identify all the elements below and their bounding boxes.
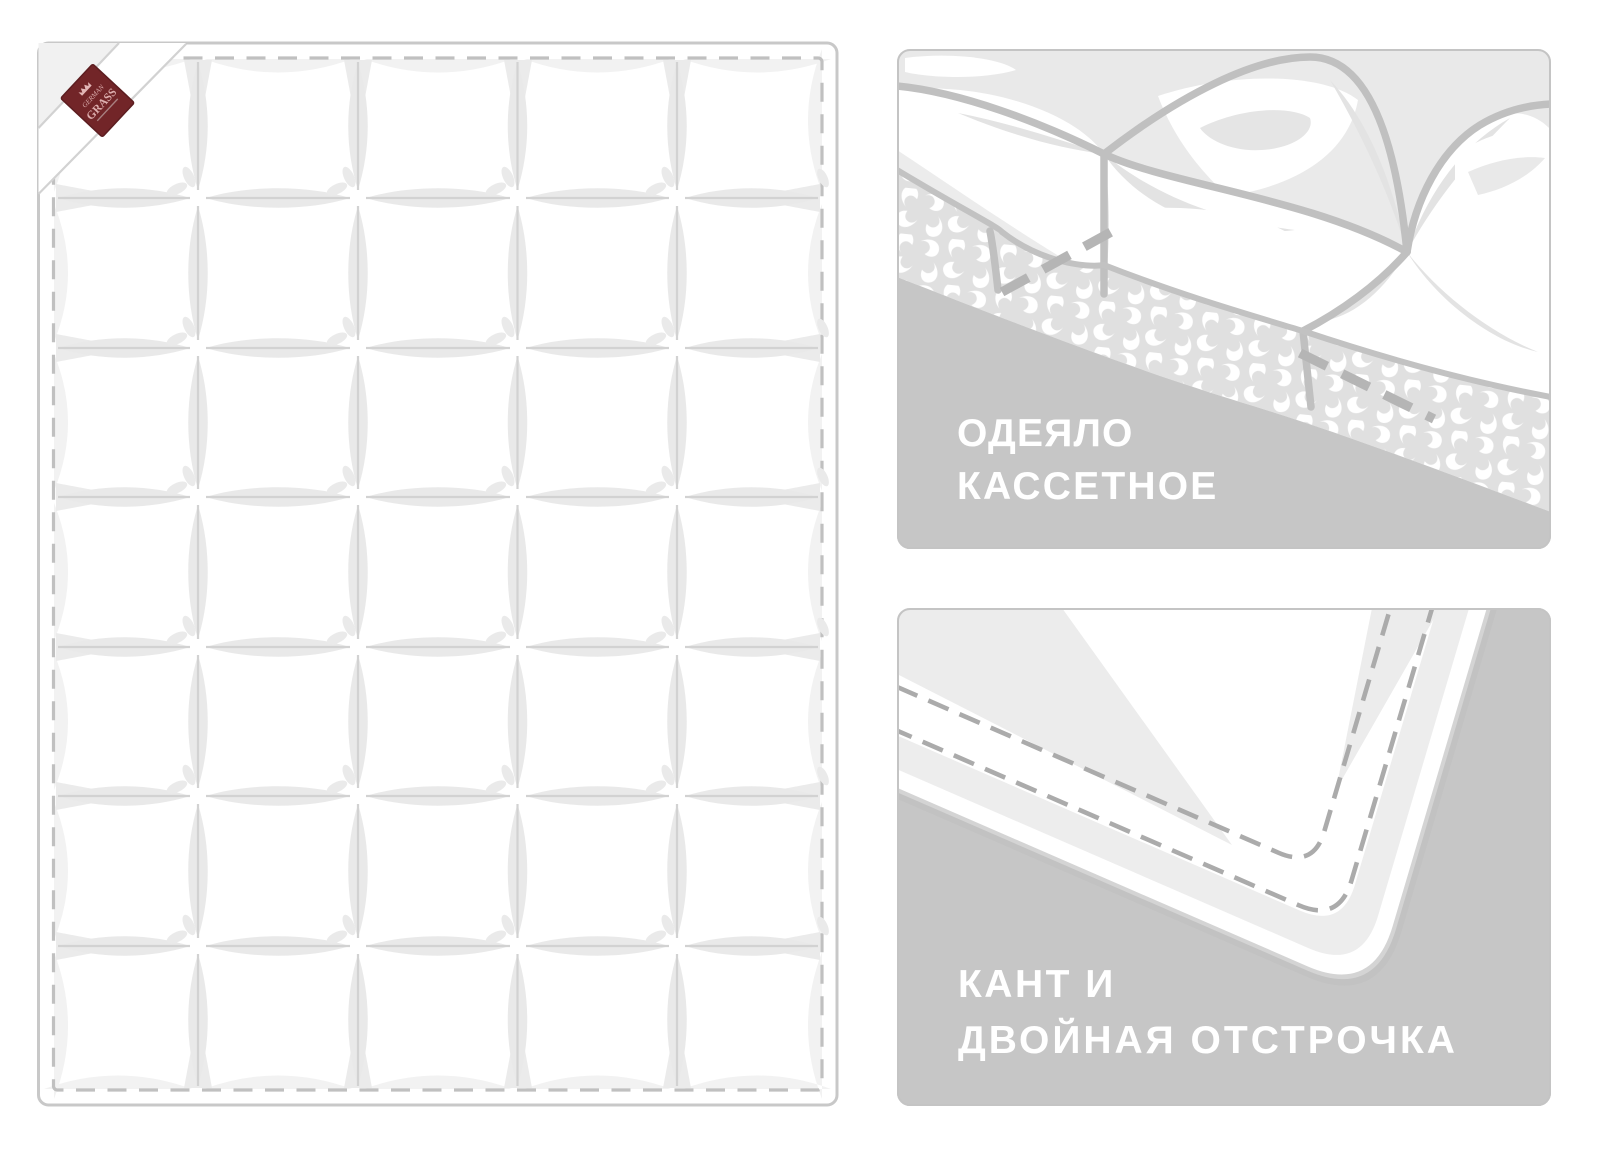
svg-text:КАНТ И: КАНТ И	[958, 963, 1116, 1006]
svg-text:ОДЕЯЛО: ОДЕЯЛО	[957, 412, 1134, 455]
svg-text:ДВОЙНАЯ ОТСТРОЧКА: ДВОЙНАЯ ОТСТРОЧКА	[958, 1017, 1458, 1062]
svg-text:КАССЕТНОЕ: КАССЕТНОЕ	[957, 465, 1218, 508]
